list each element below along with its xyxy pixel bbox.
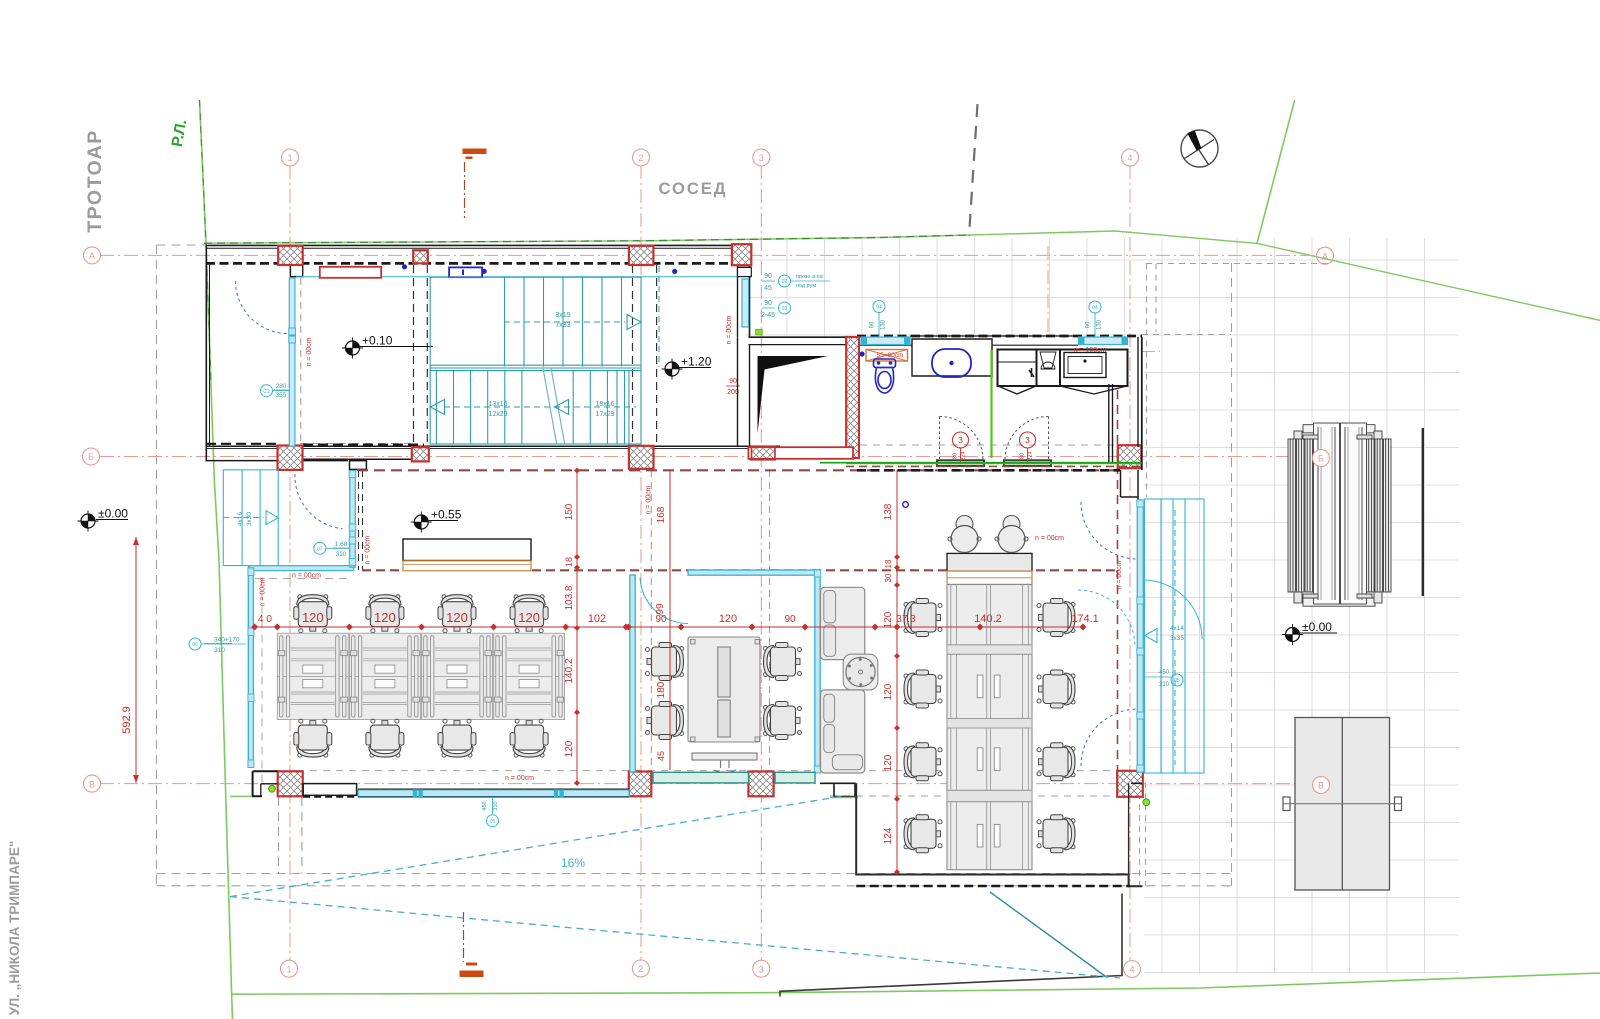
svg-text:03: 03 xyxy=(782,306,788,312)
svg-text:180: 180 xyxy=(656,681,667,698)
svg-text:120: 120 xyxy=(518,610,540,625)
svg-text:n = 00cm: n = 00cm xyxy=(306,337,313,366)
svg-text:4: 4 xyxy=(1129,965,1134,975)
svg-text:3: 3 xyxy=(759,964,764,974)
svg-text:280: 280 xyxy=(276,383,287,390)
svg-text:4x16: 4x16 xyxy=(237,512,244,526)
svg-text:n = 00cm: n = 00cm xyxy=(260,577,267,606)
svg-text:45: 45 xyxy=(764,285,772,292)
svg-text:224: 224 xyxy=(961,451,967,460)
svg-text:310: 310 xyxy=(1159,682,1170,688)
svg-text:140.2: 140.2 xyxy=(564,658,575,683)
svg-text:18x16: 18x16 xyxy=(595,401,614,408)
svg-text:В: В xyxy=(89,779,95,789)
svg-text:ТРОТОАР: ТРОТОАР xyxy=(84,129,106,233)
svg-text:120: 120 xyxy=(564,740,575,757)
svg-text:90: 90 xyxy=(764,273,772,280)
svg-text:37.3: 37.3 xyxy=(896,614,916,625)
svg-text:+0.55: +0.55 xyxy=(431,508,462,522)
svg-text:340+170: 340+170 xyxy=(214,637,240,644)
svg-text:103.8: 103.8 xyxy=(564,585,575,610)
svg-text:355: 355 xyxy=(276,392,287,399)
svg-text:80: 80 xyxy=(953,453,959,459)
svg-text:450: 450 xyxy=(1159,670,1170,676)
svg-text:8x15: 8x15 xyxy=(555,312,570,319)
svg-text:13x16: 13x16 xyxy=(488,401,507,408)
svg-text:+1.20: +1.20 xyxy=(681,355,712,369)
svg-text:592.9: 592.9 xyxy=(121,706,133,734)
svg-text:В: В xyxy=(1318,781,1324,791)
svg-text:90: 90 xyxy=(729,378,737,385)
svg-text:90: 90 xyxy=(870,321,876,328)
svg-text:07: 07 xyxy=(317,547,323,553)
svg-text:90: 90 xyxy=(764,300,772,307)
svg-text:06: 06 xyxy=(192,642,198,648)
svg-text:120: 120 xyxy=(883,754,894,771)
svg-text:450: 450 xyxy=(482,801,488,810)
svg-text:102: 102 xyxy=(588,613,606,625)
svg-text:120: 120 xyxy=(883,611,894,628)
svg-text:05: 05 xyxy=(1174,678,1180,684)
svg-text:55=90cm: 55=90cm xyxy=(877,352,904,359)
svg-text:120: 120 xyxy=(883,683,894,700)
svg-text:12x29: 12x29 xyxy=(488,411,507,418)
svg-text:1.68: 1.68 xyxy=(335,541,348,548)
svg-text:Б: Б xyxy=(88,452,94,462)
svg-text:80: 80 xyxy=(1020,453,1026,459)
svg-text:140.2: 140.2 xyxy=(974,613,1002,625)
svg-text:7x33: 7x33 xyxy=(555,322,570,329)
svg-text:30: 30 xyxy=(884,573,893,582)
svg-text:99: 99 xyxy=(655,603,666,615)
svg-text:18: 18 xyxy=(564,557,574,567)
svg-text:3: 3 xyxy=(958,435,963,445)
svg-text:120: 120 xyxy=(719,613,737,625)
svg-text:168: 168 xyxy=(656,506,667,523)
svg-text:224: 224 xyxy=(1028,451,1034,460)
svg-text:n = 00cm: n = 00cm xyxy=(505,775,534,782)
svg-text:4: 4 xyxy=(1127,153,1132,163)
svg-text:124: 124 xyxy=(883,827,894,844)
svg-text:под рум: под рум xyxy=(796,283,816,289)
svg-text:150: 150 xyxy=(1097,319,1103,330)
svg-text:04: 04 xyxy=(876,305,882,311)
svg-text:2: 2 xyxy=(638,964,643,974)
svg-text:СОСЕД: СОСЕД xyxy=(658,180,727,198)
svg-text:А: А xyxy=(1322,251,1328,261)
svg-text:прозо а па: прозо а па xyxy=(796,274,824,280)
svg-text:120: 120 xyxy=(302,610,324,625)
svg-text:n = 00cm: n = 00cm xyxy=(646,485,653,514)
svg-text:138: 138 xyxy=(883,503,894,520)
svg-text:150: 150 xyxy=(564,503,575,520)
svg-text:45: 45 xyxy=(656,751,666,761)
svg-text:18: 18 xyxy=(884,559,893,568)
svg-text:174.1: 174.1 xyxy=(1071,613,1099,625)
svg-text:02: 02 xyxy=(782,279,788,285)
svg-text:04: 04 xyxy=(1092,305,1098,311)
svg-text:310: 310 xyxy=(214,647,225,654)
svg-text:90: 90 xyxy=(1086,321,1092,328)
svg-text:310: 310 xyxy=(336,551,347,558)
svg-text:17x29: 17x29 xyxy=(595,411,614,418)
svg-text:1: 1 xyxy=(286,964,291,974)
svg-text:4x14: 4x14 xyxy=(1170,625,1184,632)
svg-text:120: 120 xyxy=(446,610,468,625)
svg-text:±0.00: ±0.00 xyxy=(1302,620,1332,634)
svg-text:16%: 16% xyxy=(561,856,585,870)
svg-text:3x35: 3x35 xyxy=(1170,635,1184,642)
svg-text:2-45: 2-45 xyxy=(761,312,775,319)
svg-text:3x30: 3x30 xyxy=(246,512,253,526)
svg-text:±0.00: ±0.00 xyxy=(98,507,128,521)
svg-text:310: 310 xyxy=(493,801,499,810)
svg-text:Б: Б xyxy=(1318,454,1324,464)
svg-text:90: 90 xyxy=(784,614,796,625)
svg-text:n = 00cm: n = 00cm xyxy=(1116,560,1123,589)
svg-text:n = 00cm: n = 00cm xyxy=(1035,535,1064,542)
svg-text:3: 3 xyxy=(759,153,764,163)
svg-text:1: 1 xyxy=(287,153,292,163)
svg-text:4 0: 4 0 xyxy=(258,614,272,625)
svg-text:120: 120 xyxy=(374,610,396,625)
svg-text:n = 100cm: n = 100cm xyxy=(1074,347,1107,354)
svg-text:150: 150 xyxy=(881,319,887,330)
svg-text:05: 05 xyxy=(490,819,496,825)
svg-text:n = 00cm: n = 00cm xyxy=(365,535,372,564)
svg-text:УЛ. „НИКОЛА ТРИМПАРЕ": УЛ. „НИКОЛА ТРИМПАРЕ" xyxy=(7,841,22,1016)
svg-text:n = 00cm: n = 00cm xyxy=(726,315,733,344)
svg-text:2: 2 xyxy=(638,153,643,163)
svg-text:n = 00cm: n = 00cm xyxy=(292,573,321,580)
svg-text:90: 90 xyxy=(655,614,667,625)
svg-text:А: А xyxy=(89,251,95,261)
svg-text:3: 3 xyxy=(1025,435,1030,445)
svg-text:+0.10: +0.10 xyxy=(362,334,393,348)
svg-text:C1: C1 xyxy=(263,389,270,395)
